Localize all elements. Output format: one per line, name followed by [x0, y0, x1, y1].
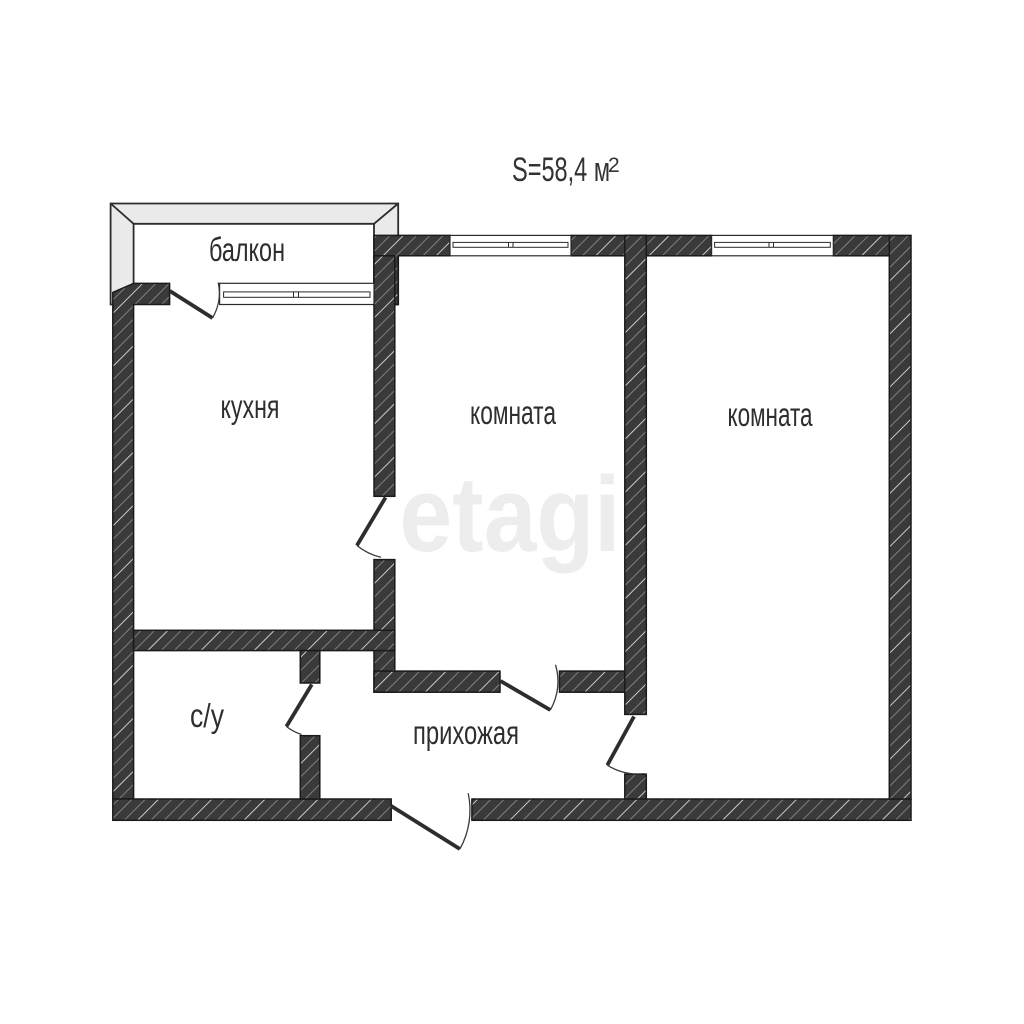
svg-text:S=58,4 м: S=58,4 м: [512, 151, 610, 189]
svg-text:прихожая: прихожая: [413, 714, 519, 751]
svg-text:комната: комната: [470, 394, 556, 431]
svg-text:etagi: etagi: [400, 454, 621, 574]
svg-text:с/у: с/у: [190, 697, 224, 734]
svg-text:2: 2: [608, 154, 620, 177]
svg-text:кухня: кухня: [221, 388, 280, 425]
svg-text:комната: комната: [728, 396, 813, 433]
svg-text:балкон: балкон: [209, 231, 285, 268]
